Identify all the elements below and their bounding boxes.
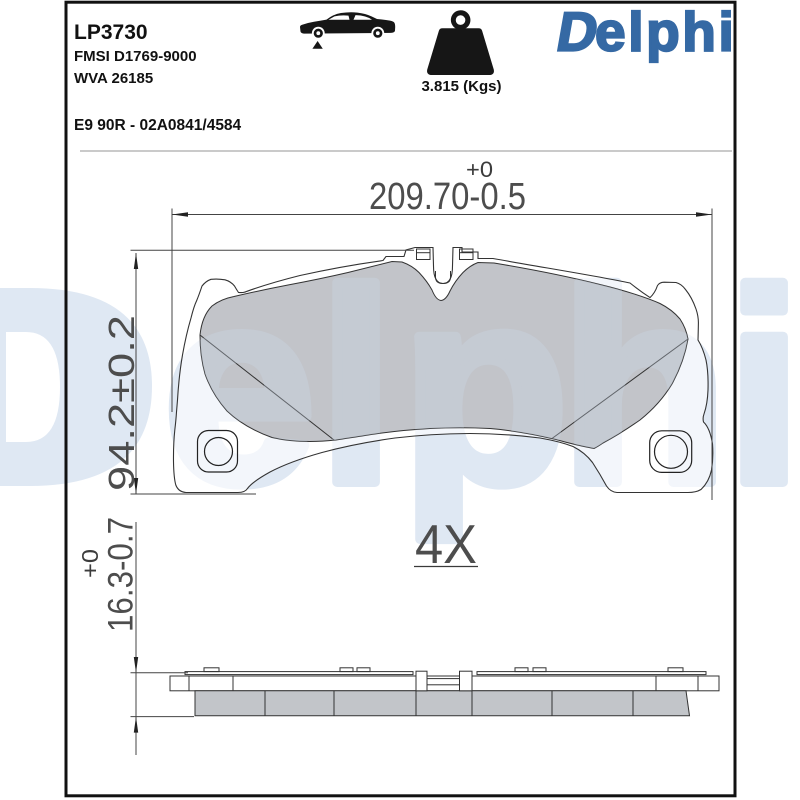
svg-text:FMSI D1769-9000: FMSI D1769-9000 <box>74 48 197 65</box>
svg-text:3.815 (Kgs): 3.815 (Kgs) <box>421 78 501 95</box>
svg-text:4X: 4X <box>415 513 477 575</box>
svg-text:E9 90R - 02A0841/4584: E9 90R - 02A0841/4584 <box>74 117 242 134</box>
svg-text:WVA 26185: WVA 26185 <box>74 70 153 87</box>
svg-text:209.70-0.5: 209.70-0.5 <box>369 176 526 218</box>
svg-text:LP3730: LP3730 <box>74 21 148 44</box>
svg-text:+0: +0 <box>77 549 103 578</box>
svg-text:16.3-0.7: 16.3-0.7 <box>102 517 141 632</box>
svg-text:94.2±0.2: 94.2±0.2 <box>101 315 142 491</box>
svg-text:elphi: elphi <box>595 1 736 63</box>
